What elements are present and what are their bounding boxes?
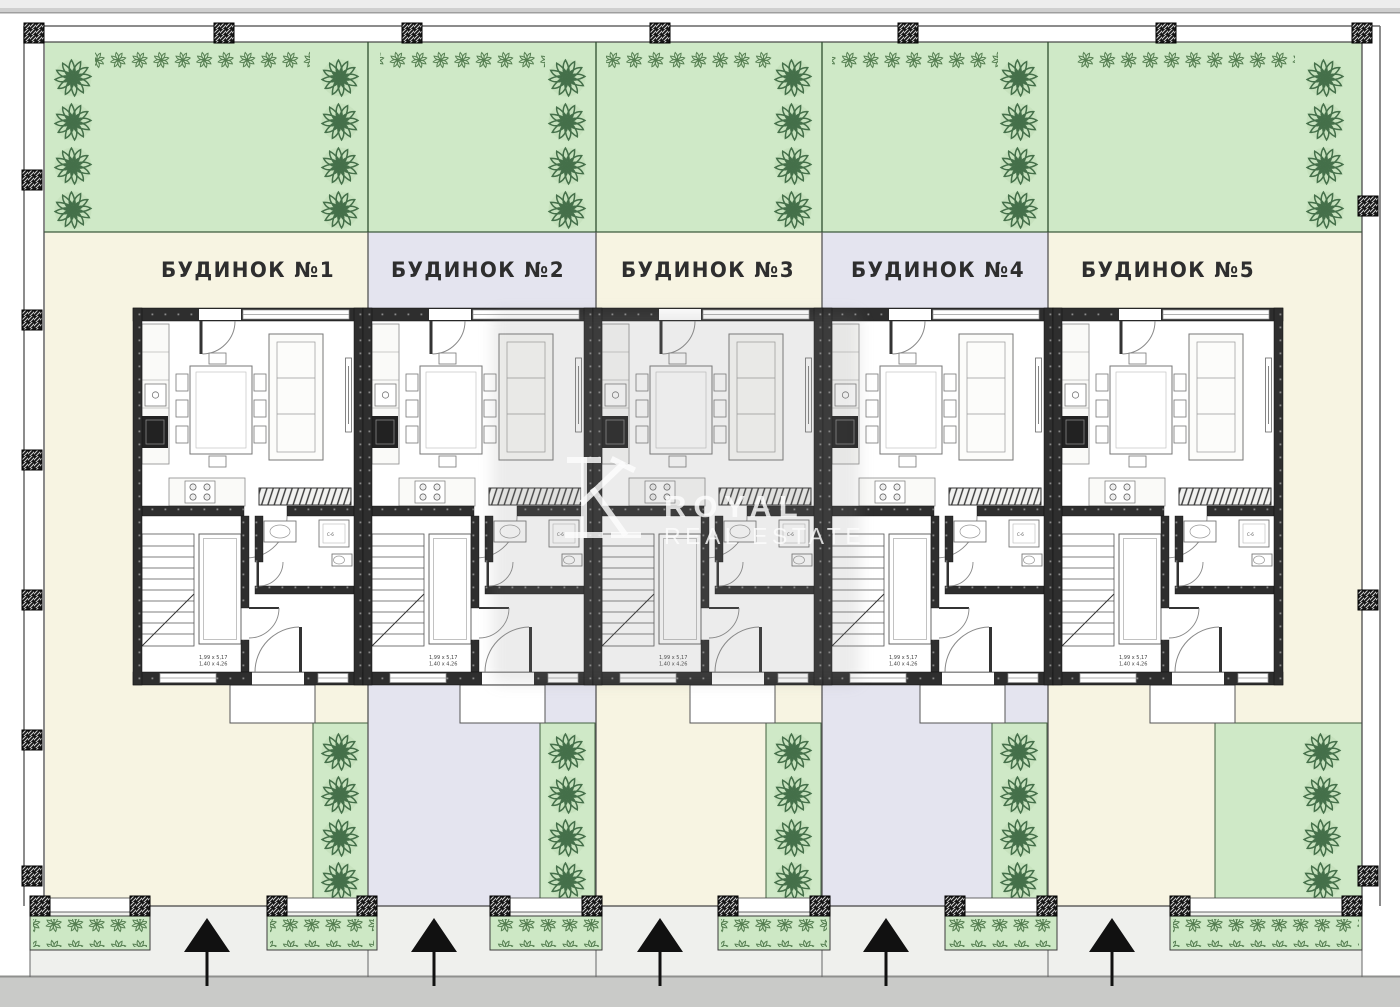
watermark-brand-top: ROYAL <box>664 489 805 525</box>
site-plan: С-6 1,99 x 5,17 1,40 x 4,26 <box>0 0 1400 1007</box>
top-border-band <box>0 0 1400 14</box>
house-label-2: БУДИНОК №2 <box>374 252 583 288</box>
house-label-3: БУДИНОК №3 <box>604 252 813 288</box>
house-label-1: БУДИНОК №1 <box>144 252 353 288</box>
watermark: ROYAL REAL ESTATE <box>560 455 890 615</box>
house-label-5: БУДИНОК №5 <box>1064 252 1273 288</box>
royal-real-estate-monogram-icon <box>560 455 644 541</box>
house-label-4: БУДИНОК №4 <box>834 252 1043 288</box>
garden-shrub-rows <box>95 51 1295 74</box>
road <box>0 977 1400 1007</box>
watermark-brand-bottom: REAL ESTATE <box>664 523 865 550</box>
sidewalk <box>30 906 1362 977</box>
road-edge-line <box>0 976 1400 978</box>
